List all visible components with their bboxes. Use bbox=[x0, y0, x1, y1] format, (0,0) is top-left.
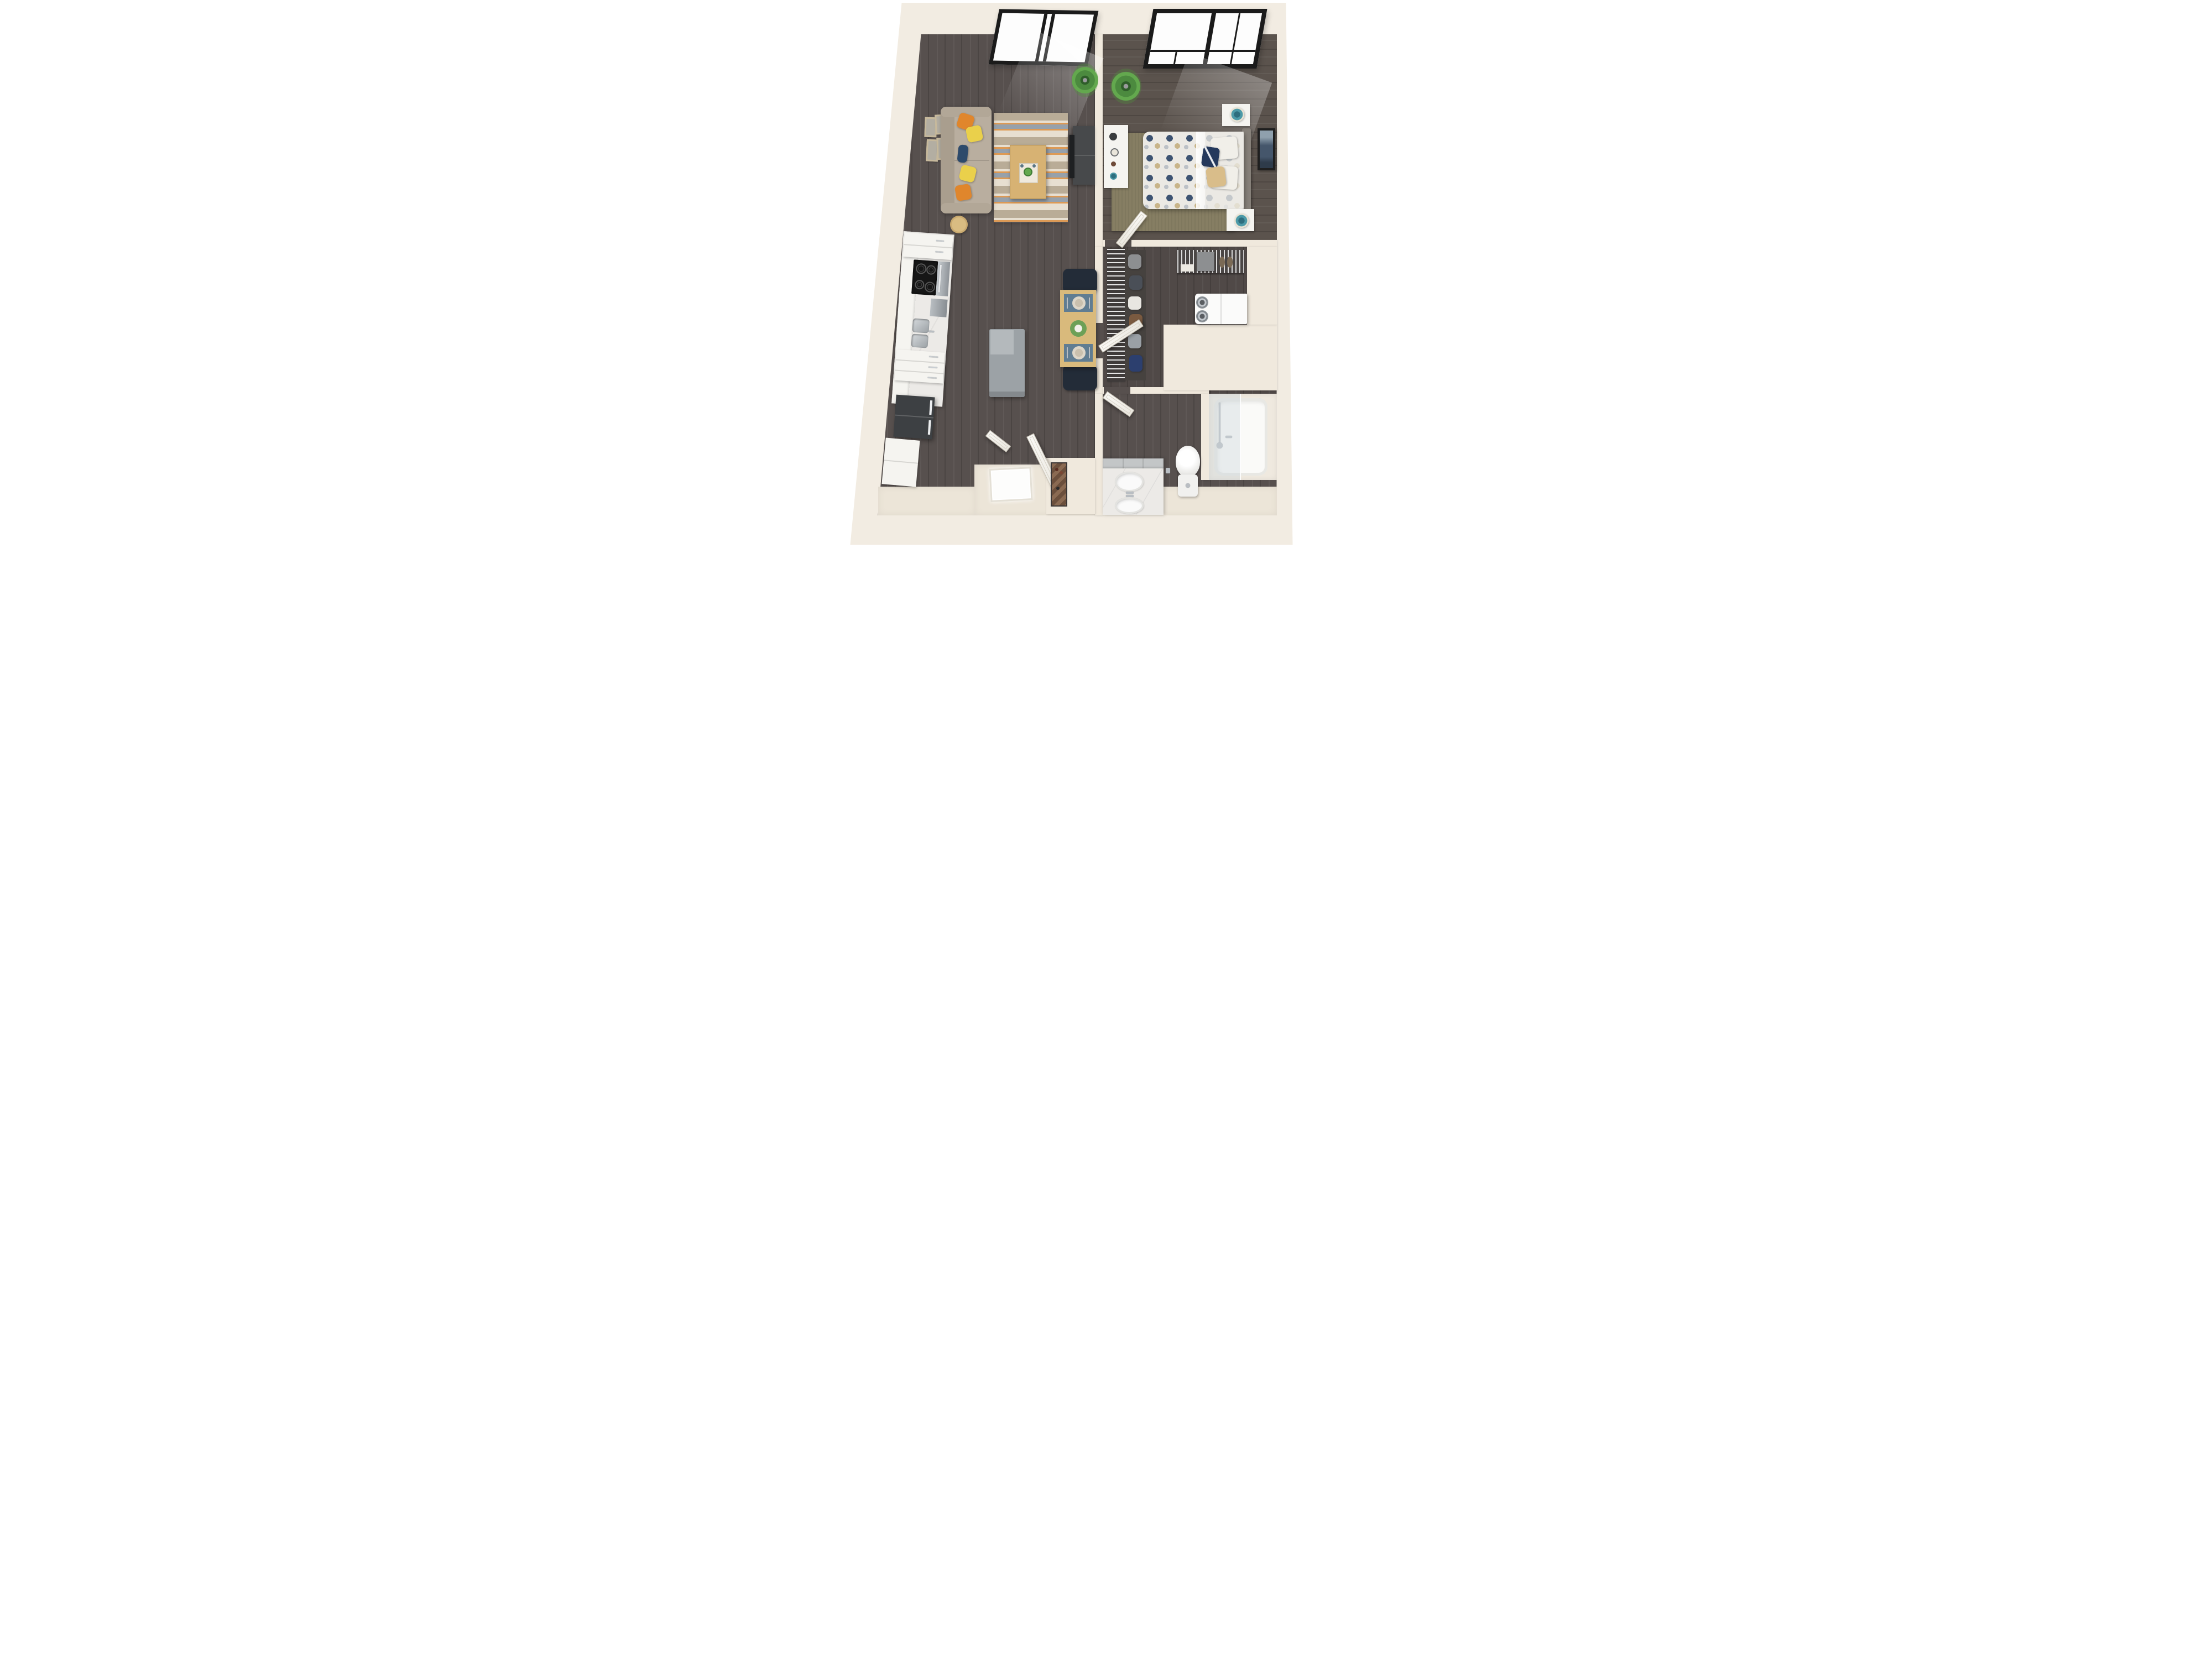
toilet-paper-holder bbox=[1166, 468, 1170, 473]
clothing-item-gray bbox=[1128, 334, 1141, 348]
clothing-item-gray bbox=[1128, 254, 1141, 269]
bottle bbox=[1060, 471, 1063, 474]
oven-handle bbox=[938, 265, 941, 293]
entry-threshold bbox=[989, 467, 1032, 502]
tray-plant bbox=[1024, 168, 1032, 176]
plate-bottom bbox=[1072, 346, 1086, 359]
dresser-vase-brown bbox=[1111, 161, 1116, 166]
wall-block-laundry-right bbox=[1247, 247, 1277, 325]
shoe bbox=[1227, 257, 1233, 268]
bottle bbox=[1055, 468, 1058, 471]
dresser-lamp bbox=[1109, 133, 1117, 140]
cabinet-handle bbox=[935, 251, 943, 253]
toilet-flush-button bbox=[1186, 483, 1190, 488]
vanity-seam bbox=[1142, 458, 1144, 468]
washer-dryer-pair bbox=[1195, 294, 1247, 324]
bedroom-plant bbox=[1110, 69, 1141, 104]
island-top-sheet bbox=[990, 330, 1014, 354]
cooktop-burner bbox=[924, 281, 935, 293]
dining-chair-bottom bbox=[1063, 365, 1097, 390]
storage-box bbox=[1197, 252, 1214, 271]
flower-centerpiece bbox=[1070, 320, 1087, 337]
clothing-item-charcoal bbox=[1129, 275, 1142, 290]
coffee-table bbox=[1010, 145, 1046, 199]
vanity-faucet bbox=[1126, 492, 1134, 494]
entry-floor-left-strip bbox=[878, 487, 975, 515]
washer-door bbox=[1196, 296, 1208, 309]
sofa-armrest-bottom bbox=[941, 203, 992, 213]
bed-pillow-navy bbox=[1201, 146, 1220, 168]
bottle bbox=[1056, 487, 1060, 490]
vanity-sink-reflection bbox=[1115, 497, 1144, 514]
clothing-item-navy bbox=[1129, 355, 1142, 372]
kitchen-sink-basin bbox=[912, 319, 930, 333]
fridge-handle bbox=[929, 400, 932, 415]
toilet-bowl-lid bbox=[1176, 446, 1200, 477]
living-room-plant bbox=[1072, 63, 1098, 97]
drawer-handle bbox=[929, 356, 938, 358]
cooktop bbox=[911, 259, 938, 295]
skylight-strut bbox=[1230, 13, 1240, 64]
oven-door bbox=[936, 261, 950, 296]
pantry-cabinet bbox=[881, 437, 920, 487]
dresser-vase-teal bbox=[1110, 173, 1117, 180]
living-room-roof-window bbox=[988, 9, 1098, 66]
kitchen-faucet bbox=[928, 331, 934, 333]
skylight-mullion-horizontal bbox=[1150, 50, 1255, 52]
throw-pillow-yellow bbox=[965, 124, 983, 143]
closet-door-opening bbox=[1095, 323, 1103, 358]
wall-living-bedroom bbox=[1095, 34, 1103, 247]
drawer-handle bbox=[927, 377, 936, 379]
cutlery bbox=[1089, 298, 1090, 309]
zigzag-shelf-unit bbox=[1052, 463, 1066, 505]
shower-glass-screen bbox=[1209, 394, 1241, 480]
drawer-cabinet bbox=[894, 349, 945, 384]
bathtub-deck bbox=[1209, 394, 1277, 480]
fridge-door-seam bbox=[895, 415, 933, 419]
throw-pillow-orange bbox=[954, 184, 972, 201]
upper-cabinet bbox=[902, 232, 953, 260]
drawer-seam bbox=[895, 359, 944, 364]
toilet-base bbox=[1178, 474, 1198, 497]
nightstand-lamp-teal bbox=[1234, 213, 1249, 228]
sofa-backrest bbox=[941, 107, 954, 213]
nightstand-lamp-teal bbox=[1230, 107, 1244, 122]
cooktop-burner bbox=[926, 265, 936, 275]
pantry-seam bbox=[884, 460, 918, 463]
washer-dryer-seam bbox=[1220, 294, 1222, 324]
tv-console bbox=[1073, 126, 1095, 185]
closet-wire-shelving bbox=[1107, 249, 1125, 382]
cooktop-burner bbox=[914, 280, 924, 290]
cabinet-seam bbox=[904, 244, 952, 248]
dining-table bbox=[1060, 290, 1096, 367]
cutlery bbox=[1067, 298, 1068, 309]
tv-screen bbox=[1070, 135, 1074, 178]
vanity-sink bbox=[1115, 472, 1144, 492]
dishwasher bbox=[930, 299, 947, 317]
refrigerator bbox=[893, 395, 935, 440]
tv-console-seam bbox=[1073, 155, 1095, 156]
bedroom-skylight-window bbox=[1142, 9, 1267, 69]
round-side-table bbox=[950, 216, 968, 233]
wall-bathroom-west bbox=[1095, 394, 1103, 515]
drawer-seam bbox=[895, 370, 943, 374]
tray-cup bbox=[1032, 164, 1036, 168]
closet-hanging-clothes bbox=[1125, 250, 1146, 380]
clothing-item-white bbox=[1128, 296, 1141, 310]
entry-niche bbox=[1051, 462, 1067, 507]
plate-top bbox=[1072, 296, 1086, 310]
closet-wire-baskets bbox=[1177, 250, 1244, 273]
dryer-door bbox=[1196, 310, 1208, 322]
vanity-seam bbox=[1123, 458, 1124, 468]
floorplan-canvas bbox=[738, 0, 1475, 553]
cutlery bbox=[1089, 347, 1090, 358]
wall-tub-left bbox=[1201, 394, 1209, 480]
dresser-candle-holder bbox=[1110, 148, 1119, 156]
skylight-mullion bbox=[1202, 13, 1215, 64]
vanity-cabinet-fronts bbox=[1103, 458, 1164, 468]
cooktop-burner bbox=[915, 263, 926, 274]
bedroom-dresser bbox=[1104, 125, 1128, 188]
fridge-handle bbox=[927, 420, 931, 435]
tray-cup bbox=[1020, 164, 1024, 168]
cutlery bbox=[1067, 347, 1068, 358]
kitchen-sink-basin bbox=[911, 334, 928, 348]
island-base-edge bbox=[989, 392, 1025, 397]
drawer-handle bbox=[928, 367, 937, 368]
folded-towels bbox=[1181, 264, 1194, 272]
bed-pillow-tan bbox=[1205, 166, 1226, 188]
kitchen-island bbox=[989, 329, 1025, 397]
shoe bbox=[1219, 257, 1225, 268]
wall-block-center-right bbox=[1164, 325, 1277, 390]
bathroom-vanity bbox=[1103, 458, 1164, 515]
throw-pillow-navy bbox=[957, 144, 968, 163]
cabinet-handle bbox=[936, 240, 943, 242]
bedroom-wall-art bbox=[1258, 128, 1275, 170]
